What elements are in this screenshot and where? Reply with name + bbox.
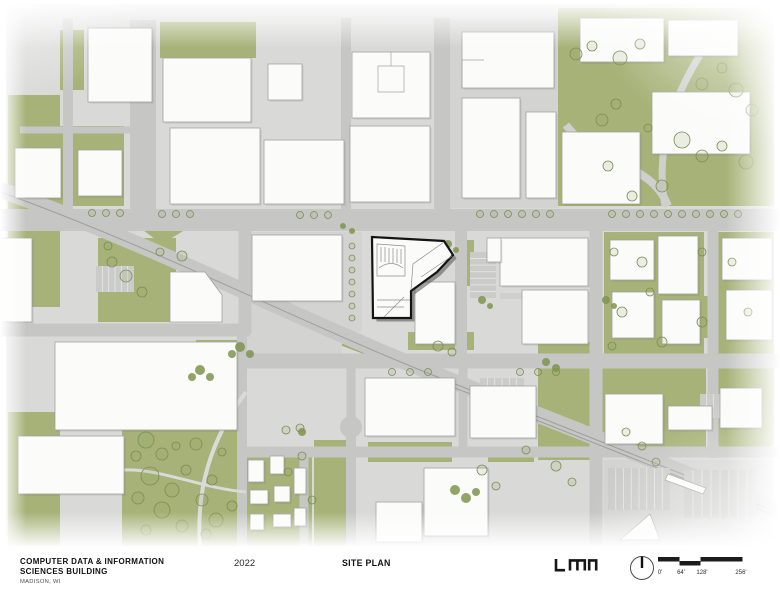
tree	[349, 279, 355, 285]
tree	[349, 315, 355, 321]
tree	[617, 307, 627, 317]
tree	[651, 211, 658, 218]
project-year: 2022	[234, 558, 255, 569]
scale-segment	[658, 557, 680, 562]
tree	[165, 483, 179, 497]
tree	[519, 211, 526, 218]
tree	[698, 248, 706, 256]
building-footprint	[248, 460, 264, 482]
tree	[517, 369, 524, 376]
tree	[159, 211, 166, 218]
tree	[535, 369, 542, 376]
tree	[433, 341, 443, 351]
building-footprint	[526, 112, 556, 198]
tree	[89, 210, 96, 217]
tree	[172, 442, 180, 450]
lmn-logo	[553, 557, 599, 573]
building-footprint	[270, 456, 284, 474]
tree	[349, 255, 355, 261]
shrub	[206, 373, 214, 381]
tree	[196, 494, 208, 506]
shrub	[611, 303, 617, 309]
tree	[141, 467, 159, 485]
tree	[448, 348, 456, 356]
title-bar: COMPUTER DATA & INFORMATION SCIENCES BUI…	[0, 548, 780, 603]
building-footprint	[415, 282, 455, 344]
shrub	[298, 428, 306, 436]
building-footprint	[252, 235, 342, 301]
site-plan-map	[0, 0, 780, 548]
shrub	[450, 485, 460, 495]
shrub	[602, 296, 610, 304]
project-title-block: COMPUTER DATA & INFORMATION SCIENCES BUI…	[20, 557, 164, 585]
shrub	[195, 365, 205, 375]
shrub	[246, 350, 254, 358]
tree	[156, 248, 164, 256]
tree	[103, 210, 110, 217]
tree	[389, 369, 396, 376]
tree	[656, 180, 668, 192]
building-footprint	[470, 386, 536, 438]
tree	[349, 267, 355, 273]
scale-label-256: 256'	[735, 570, 746, 576]
building-footprint	[662, 300, 700, 344]
shrub	[235, 342, 245, 352]
tree	[665, 211, 672, 218]
tree	[311, 212, 318, 219]
building-footprint	[55, 342, 237, 430]
tree	[707, 211, 714, 218]
tree	[491, 211, 498, 218]
building-footprint	[522, 290, 588, 344]
cul-de-sac	[340, 416, 362, 438]
building-footprint	[350, 126, 430, 202]
tree	[657, 337, 667, 347]
tree	[104, 242, 112, 250]
corner-fade-bottom-right	[585, 395, 780, 548]
shrub	[542, 358, 550, 366]
tree	[218, 448, 226, 456]
shrub	[349, 228, 355, 234]
tree	[696, 150, 708, 162]
building-footprint	[250, 490, 268, 504]
tree	[522, 446, 530, 454]
tree	[282, 426, 290, 434]
tree	[609, 211, 616, 218]
tree	[547, 211, 554, 218]
shrub	[472, 488, 480, 496]
tree	[492, 482, 500, 490]
building-footprint	[18, 436, 124, 494]
tree	[505, 211, 512, 218]
tree	[187, 211, 194, 218]
tree	[551, 461, 561, 471]
shrub	[552, 364, 560, 372]
shrub	[487, 303, 493, 309]
tree	[627, 191, 637, 201]
tree	[177, 251, 187, 261]
lmn-logo-glyphs	[556, 559, 596, 571]
tree	[425, 369, 432, 376]
tree	[137, 287, 147, 297]
shrub	[188, 373, 196, 381]
tree	[679, 211, 686, 218]
corner-fade-top-right	[590, 0, 780, 150]
building-footprint	[610, 240, 654, 280]
building-footprint	[163, 58, 251, 122]
corner-fade-top-left	[0, 0, 150, 100]
building-footprint	[268, 64, 302, 100]
building-footprint	[78, 150, 122, 196]
tree	[477, 211, 484, 218]
tree	[131, 451, 141, 461]
tree	[181, 465, 191, 475]
shrub	[340, 223, 346, 229]
building-footprint	[500, 238, 588, 286]
tree	[207, 475, 217, 485]
shrub	[478, 296, 486, 304]
scale-segment	[680, 561, 701, 566]
site-plan-sheet: COMPUTER DATA & INFORMATION SCIENCES BUI…	[0, 0, 780, 603]
tree	[568, 478, 576, 486]
tree	[173, 211, 180, 218]
tree	[284, 468, 292, 476]
tree	[298, 452, 306, 460]
building-footprint	[365, 378, 455, 436]
tree	[120, 270, 132, 282]
tree	[623, 211, 630, 218]
tree	[117, 210, 124, 217]
tree	[349, 303, 355, 309]
tree	[608, 342, 616, 350]
project-title-line1: COMPUTER DATA & INFORMATION	[20, 557, 164, 567]
building-footprint	[294, 468, 306, 494]
project-title-line2: SCIENCES BUILDING	[20, 567, 164, 577]
shrub	[453, 247, 459, 253]
tree	[693, 211, 700, 218]
tree	[570, 48, 582, 60]
tree	[138, 432, 154, 448]
tree	[308, 496, 316, 504]
tree	[533, 211, 540, 218]
sheet-title: SITE PLAN	[342, 558, 391, 568]
project-location: MADISON, WI	[20, 579, 164, 585]
tree	[697, 317, 707, 327]
tree	[637, 211, 644, 218]
shrub	[461, 493, 471, 503]
building-footprint	[170, 128, 260, 204]
tree	[190, 438, 202, 450]
scale-segment	[701, 557, 743, 562]
north-arrow-icon	[626, 552, 658, 584]
tree	[603, 161, 613, 171]
building-footprint	[462, 98, 520, 198]
tree	[646, 288, 654, 296]
tree	[349, 243, 355, 249]
building-footprint	[658, 236, 698, 294]
tree	[132, 492, 144, 504]
scale-bar: 0' 64' 128' 256'	[657, 555, 749, 581]
tree	[325, 212, 332, 219]
tree	[227, 501, 237, 511]
tree	[637, 257, 647, 267]
tree	[107, 257, 117, 267]
tree	[297, 212, 304, 219]
building-footprint	[264, 140, 344, 204]
shrub	[228, 350, 236, 358]
scale-label-64: 64'	[677, 570, 685, 576]
building-footprint	[487, 238, 501, 262]
scale-label-128: 128'	[696, 570, 707, 576]
tree	[407, 369, 414, 376]
building-footprint	[274, 486, 290, 502]
scale-label-0: 0'	[658, 570, 662, 576]
tree	[156, 448, 168, 460]
tree	[349, 291, 355, 297]
tree	[477, 465, 487, 475]
tree	[610, 248, 618, 256]
